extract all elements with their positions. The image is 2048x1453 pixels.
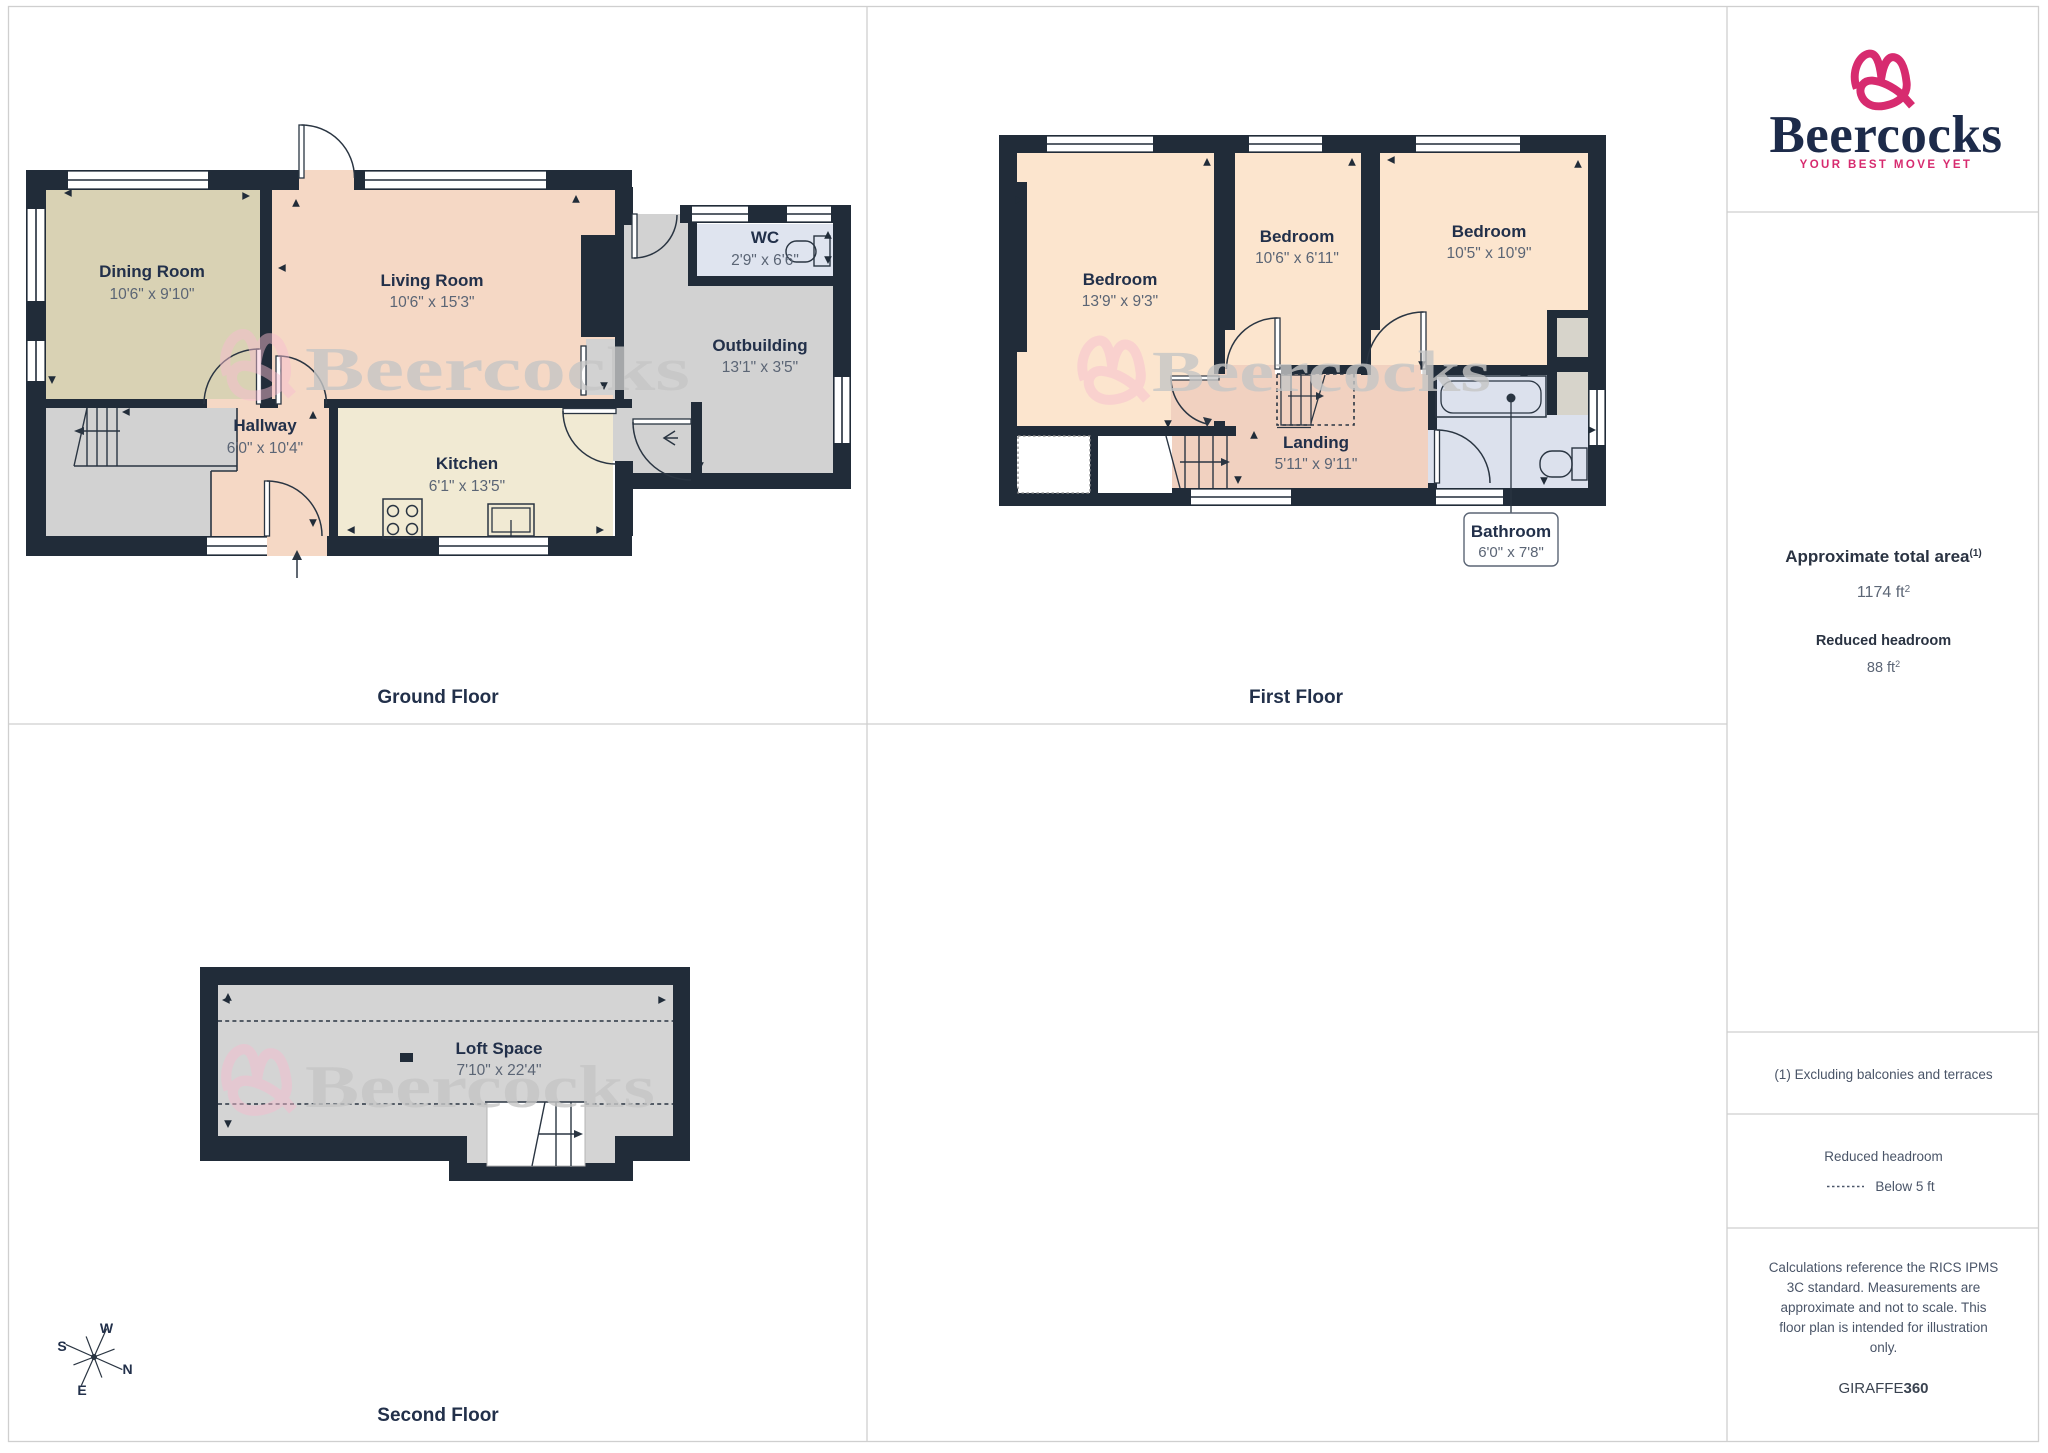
- svg-text:Beercocks: Beercocks: [1152, 339, 1491, 404]
- svg-text:6'0" x 7'8": 6'0" x 7'8": [1478, 544, 1544, 561]
- svg-text:Loft Space: Loft Space: [456, 1039, 543, 1058]
- svg-text:(1) Excluding balconies and te: (1) Excluding balconies and terraces: [1774, 1067, 1993, 1082]
- svg-text:6'1" x 13'5": 6'1" x 13'5": [429, 478, 505, 495]
- svg-text:Beercocks: Beercocks: [1769, 106, 2002, 164]
- svg-text:Living Room: Living Room: [381, 271, 484, 290]
- svg-text:Below 5 ft: Below 5 ft: [1875, 1179, 1935, 1194]
- svg-text:1174 ft2: 1174 ft2: [1857, 584, 1911, 601]
- svg-text:Bedroom: Bedroom: [1083, 270, 1158, 289]
- svg-text:E: E: [77, 1382, 86, 1398]
- svg-text:Dining Room: Dining Room: [99, 262, 205, 281]
- svg-text:Hallway: Hallway: [233, 416, 297, 435]
- svg-text:3C standard. Measurements are: 3C standard. Measurements are: [1787, 1280, 1981, 1295]
- svg-text:Kitchen: Kitchen: [436, 454, 498, 473]
- svg-text:6'0" x 10'4": 6'0" x 10'4": [227, 440, 303, 457]
- svg-text:10'6" x 6'11": 10'6" x 6'11": [1255, 250, 1339, 267]
- svg-text:W: W: [100, 1320, 114, 1336]
- svg-text:Bedroom: Bedroom: [1260, 227, 1335, 246]
- svg-text:Beercocks: Beercocks: [305, 336, 690, 404]
- svg-text:YOUR BEST MOVE YET: YOUR BEST MOVE YET: [1800, 159, 1973, 171]
- svg-text:Outbuilding: Outbuilding: [712, 336, 807, 355]
- svg-text:7'10" x 22'4": 7'10" x 22'4": [456, 1062, 541, 1079]
- svg-text:10'5" x 10'9": 10'5" x 10'9": [1446, 245, 1531, 262]
- svg-text:Approximate total area(1): Approximate total area(1): [1785, 547, 1981, 566]
- svg-text:floor plan is intended for ill: floor plan is intended for illustration: [1779, 1320, 1988, 1335]
- svg-text:10'6" x 9'10": 10'6" x 9'10": [109, 286, 194, 303]
- svg-text:Bathroom: Bathroom: [1471, 522, 1551, 541]
- svg-text:Ground Floor: Ground Floor: [377, 687, 499, 708]
- svg-text:Second Floor: Second Floor: [377, 1405, 499, 1426]
- svg-text:Calculations reference the RIC: Calculations reference the RICS IPMS: [1769, 1260, 1999, 1275]
- svg-text:5'11" x 9'11": 5'11" x 9'11": [1275, 456, 1358, 473]
- svg-text:Reduced headroom: Reduced headroom: [1824, 1149, 1943, 1164]
- svg-text:WC: WC: [751, 228, 779, 247]
- svg-text:GIRAFFE360: GIRAFFE360: [1838, 1380, 1928, 1397]
- svg-text:13'1" x 3'5": 13'1" x 3'5": [722, 359, 798, 376]
- svg-text:2'9" x 6'6": 2'9" x 6'6": [731, 252, 799, 269]
- svg-text:First Floor: First Floor: [1249, 687, 1344, 708]
- svg-text:13'9" x 9'3": 13'9" x 9'3": [1082, 293, 1158, 310]
- svg-text:S: S: [57, 1338, 66, 1354]
- svg-text:N: N: [122, 1361, 132, 1377]
- svg-text:Landing: Landing: [1283, 433, 1349, 452]
- svg-text:Bedroom: Bedroom: [1452, 222, 1527, 241]
- svg-text:only.: only.: [1870, 1340, 1898, 1355]
- svg-text:approximate and not to scale.: approximate and not to scale. This: [1780, 1300, 1986, 1315]
- svg-text:Reduced headroom: Reduced headroom: [1816, 633, 1951, 649]
- svg-text:10'6" x 15'3": 10'6" x 15'3": [389, 294, 474, 311]
